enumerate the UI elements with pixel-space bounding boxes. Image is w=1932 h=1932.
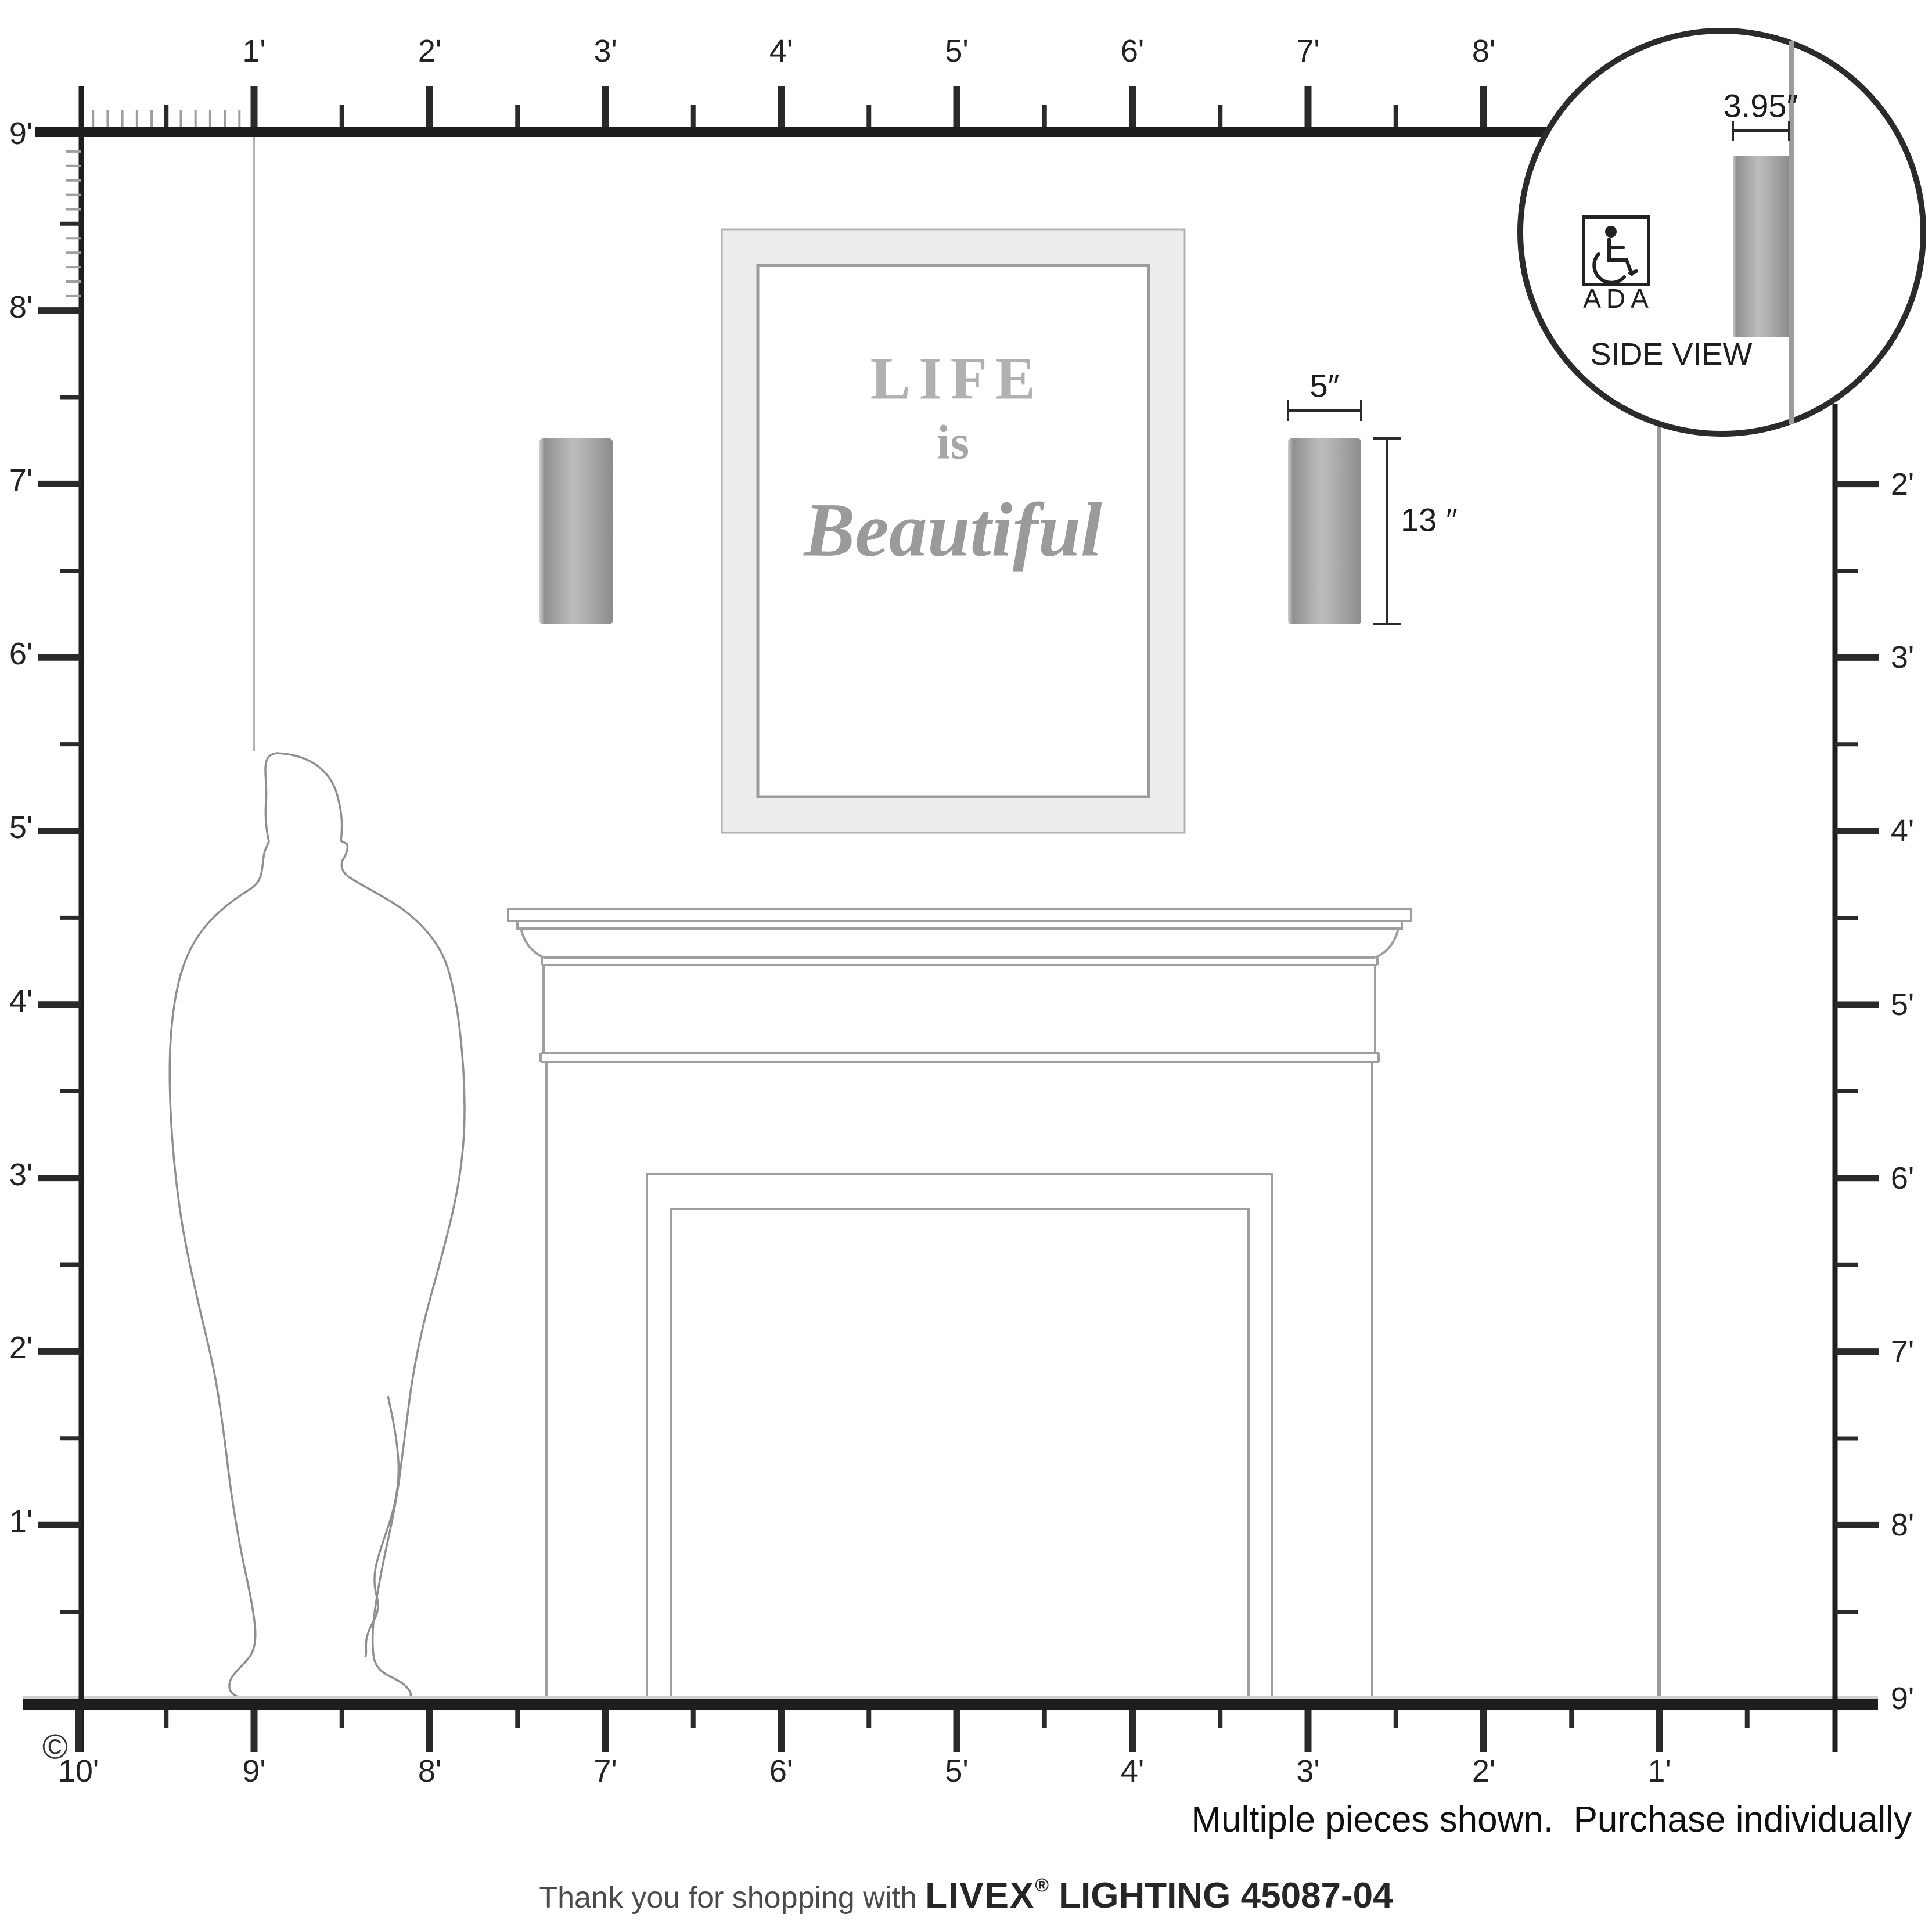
ruler-label-left: 1' [9, 1503, 33, 1539]
ruler-label-right: 4' [1891, 813, 1914, 849]
ruler-label-right: 8' [1891, 1507, 1914, 1543]
side-view-inset [1520, 31, 1923, 434]
ruler-label-right: 3' [1891, 639, 1914, 675]
sconce-height-label: 13 ″ [1401, 501, 1458, 539]
art-text-beautiful: Beautiful [804, 485, 1102, 574]
sconce-width-label: 5″ [1310, 367, 1340, 405]
art-text-life: LIFE [870, 344, 1044, 413]
ruler-label-right: 5' [1891, 987, 1914, 1023]
ruler-label-top: 1' [242, 33, 265, 69]
ruler-inch-ticks [66, 110, 239, 296]
sconce-left [539, 438, 613, 624]
ruler-label-bottom: 6' [769, 1753, 793, 1789]
ruler-label-bottom: 1' [1647, 1753, 1671, 1789]
ruler-label-bottom: 8' [418, 1753, 441, 1789]
product-number: LIGHTING 45087-04 [1049, 1876, 1393, 1916]
floor-highlight [23, 1696, 1878, 1699]
ruler-label-top: 3' [593, 33, 617, 69]
ruler-label-top: 2' [418, 33, 441, 69]
sconce-side-view [1733, 156, 1789, 337]
ruler-label-top: 6' [1121, 33, 1144, 69]
sconce-right [1288, 438, 1361, 624]
ruler-label-left: 6' [9, 636, 33, 672]
footer-thanks-line: Thank you for shopping with LIVEX® LIGHT… [0, 1875, 1932, 1916]
ruler-label-left: 4' [9, 983, 33, 1019]
ruler-label-left: 5' [9, 810, 33, 846]
ada-label: ADA [1583, 283, 1654, 314]
ada-box [1584, 217, 1649, 285]
product-dimension-diagram: 5″ 13 ″ 3.95″ ADA SIDE VIEW LIFE is Beau… [0, 0, 1932, 1932]
art-text-is: is [937, 415, 969, 471]
ruler-label-left: 8' [9, 289, 33, 325]
ruler-label-bottom: 3' [1296, 1753, 1319, 1789]
ruler-label-bottom: 9' [242, 1753, 265, 1789]
ruler-label-right: 6' [1891, 1160, 1914, 1196]
ruler-label-bottom: 7' [593, 1753, 617, 1789]
ruler-label-right: 9' [1891, 1681, 1914, 1717]
ruler-label-left: 7' [9, 462, 33, 498]
ruler-label-right: 2' [1891, 466, 1914, 502]
ruler-label-top: 4' [769, 33, 793, 69]
ruler-label-bottom: 4' [1121, 1753, 1144, 1789]
ruler-label-bottom: 2' [1472, 1753, 1495, 1789]
purchase-note: Multiple pieces shown. Purchase individu… [1191, 1799, 1912, 1840]
ruler-label-bottom: 5' [945, 1753, 968, 1789]
ceiling-bar [35, 127, 1546, 137]
ruler-label-top: 7' [1296, 33, 1319, 69]
sconce-depth-label: 3.95″ [1724, 87, 1798, 125]
ruler-label-bottom: 10' [58, 1753, 99, 1789]
thanks-prefix: Thank you for shopping with [539, 1881, 925, 1915]
floor-bar [23, 1699, 1878, 1710]
side-view-caption: SIDE VIEW [1590, 336, 1752, 372]
ruler-label-left: 2' [9, 1330, 33, 1366]
fireplace-mantel [508, 909, 1411, 1699]
brand-name: LIVEX [925, 1876, 1035, 1916]
registered-mark: ® [1035, 1875, 1049, 1895]
ruler-label-left: 9' [9, 116, 33, 152]
person-silhouette [170, 753, 465, 1699]
ruler-label-left: 3' [9, 1157, 33, 1193]
ruler-label-top: 5' [945, 33, 968, 69]
ruler-label-right: 7' [1891, 1334, 1914, 1370]
ruler-label-top: 8' [1472, 33, 1495, 69]
